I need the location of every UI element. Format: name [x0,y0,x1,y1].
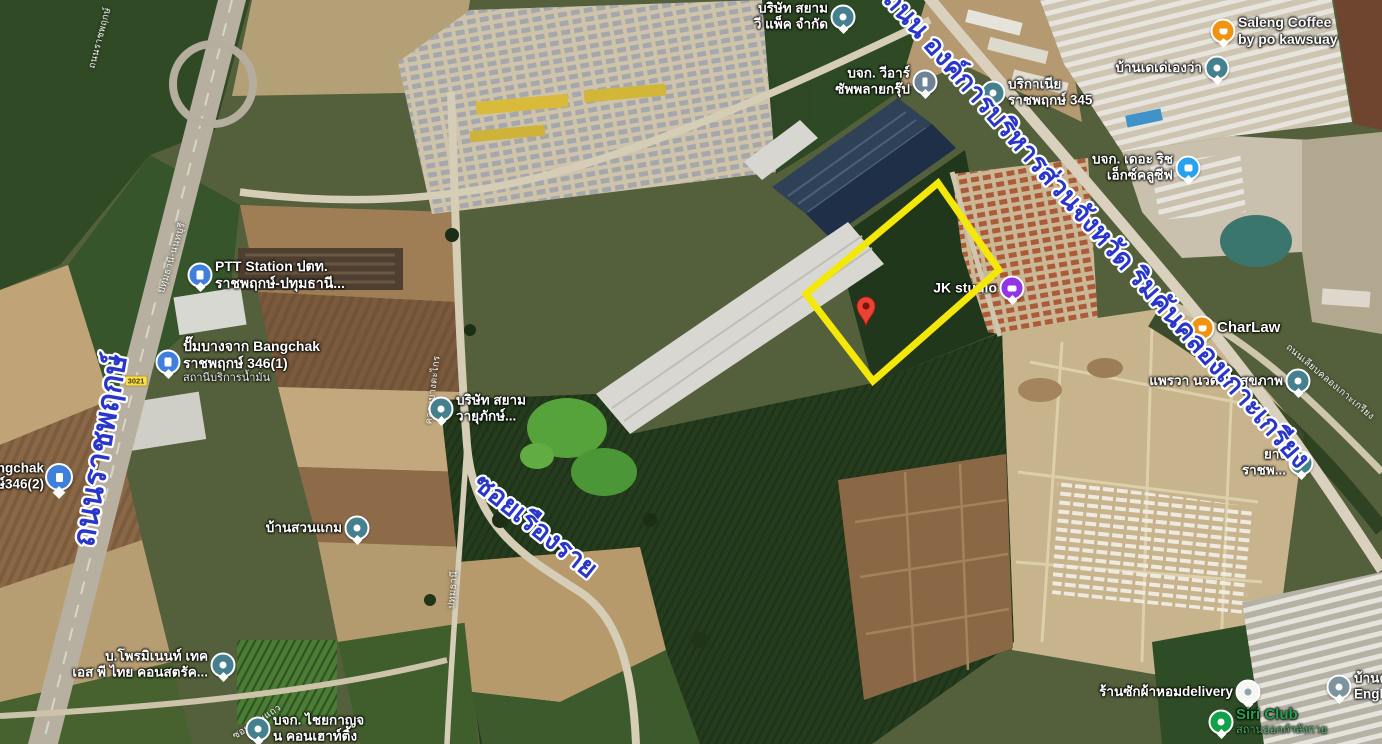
poi-label: แพรวา นวดเพื่อสุขภาพ [1149,373,1283,389]
poi-label-line: บ้านเดเด่เองว่า [1115,60,1202,76]
place-teal-icon [1289,451,1314,476]
poi-label-line: Bangchak [0,461,44,477]
poi-label-line: PTT Station ปตท. [215,258,345,275]
place-teal-icon [345,516,370,541]
poi-label-line: เอ็กซ์คลูซีฟ [1092,168,1173,184]
road-label-minor: ปทุมธานี [444,570,462,609]
poi-label-line: น คอนเฮาท์ติ้ง [273,729,364,744]
poi-label: ปั๊มบางจาก Bangchakราชพฤกษ์ 346(1)สถานีบ… [183,338,320,386]
poi-label: บริษัท สยามวี แพ็ค จำกัด [754,1,828,34]
place-teal-icon [1286,369,1311,394]
place-teal-icon [981,81,1006,106]
poi-label: บจก. วีอาร์ซัพพลายกรุ๊ป [835,66,910,99]
place-light-icon [1236,680,1261,705]
poi-label: บจก. เดอะ ริชเอ็กซ์คลูซีฟ [1092,152,1173,185]
poi-label-line: บริษัท สยาม [456,393,526,409]
place-teal-icon [831,5,856,30]
lodging-blue-icon [1176,156,1201,181]
poi-label: PTT Station ปตท.ราชพฤกษ์-ปทุมธานี... [215,258,345,292]
poi-label-line: ราชพ... [1242,463,1286,479]
poi-label-line: Siri Club [1236,706,1327,724]
road-label-provincial-administration-road: ถนน องค์การบริหารส่วนจังหวัด ริมคันคลองเ… [878,0,1317,474]
pin-dot-icon [862,302,869,309]
poi-label: ยางราชพ... [1242,447,1286,480]
poi-label-line: วายุภักษ์... [456,409,526,425]
fuel-blue-icon [188,263,213,288]
poi-label-line: ซัพพลายกรุ๊ป [835,82,910,98]
poi-label-line: เอส พี ไทย คอนสตรัค... [72,665,208,681]
poi-label-line: ร้านซักผ้าหอมdelivery [1099,684,1233,700]
poi-label: บริษัท สยามวายุภักษ์... [456,393,526,426]
poi-label-line: วี แพ็ค จำกัด [754,17,828,33]
studio-purple-icon [1000,276,1025,301]
poi-label: ร้านซักผ้าหอมdelivery [1099,684,1233,700]
poi-label: บ.โพรมิเนนท์ เทคเอส พี ไทย คอนสตรัค... [72,649,208,682]
poi-label: Siri Clubสถานออกกำลังกาย [1236,706,1327,738]
place-teal-icon [211,653,236,678]
poi-label-line: บ้านสวนแกม [266,520,342,536]
poi-label-line: ปั๊มบางจาก Bangchak [183,338,320,355]
route-shield: 3021 [125,376,148,387]
poi-label: JK studio [933,279,997,296]
poi-label-line: บ้านครู [1354,671,1382,687]
place-teal-icon [246,717,271,742]
poi-label: บ้านครูEnglish [1354,671,1382,704]
poi-sublabel: สถานีบริการน้ำมัน [183,372,320,385]
poi-label-line: English [1354,687,1382,703]
pin-icon [857,297,875,326]
poi-label: บริกาเนียราชพฤกษ์ 345 [1008,77,1092,110]
poi-label: บจก. ไชยกาญจน คอนเฮาท์ติ้ง [273,713,364,744]
place-gray-icon [1327,675,1352,700]
poi-label-line: by po kawsuay [1238,31,1338,48]
poi-label-line: บริษัท สยาม [754,1,828,17]
satellite-map[interactable]: ถนนเลียบคลองเกาะเกรียงปทุมธานี-นนทบุรีคล… [0,0,1382,744]
poi-layer: Saleng Coffeeby po kawsuayบ้านเดเด่เองว่… [0,0,1382,744]
park-green-icon [1209,710,1234,735]
poi-label: CharLaw [1217,319,1280,337]
road-label-minor: ถนนราชพฤกษ์ [85,6,116,70]
poi-label: บ้านเดเด่เองว่า [1115,60,1202,76]
poi-label-line: บจก. วีอาร์ [835,66,910,82]
fuel-blue-icon [156,350,181,375]
poi-label-line: บ.โพรมิเนนท์ เทค [72,649,208,665]
company-slate-icon [913,70,938,95]
fuel-pin-blue-icon [45,463,73,491]
poi-label-line: บจก. เดอะ ริช [1092,152,1173,168]
poi-label-line: Saleng Coffee [1238,14,1338,31]
road-label-ratchaphruek: ถนนราชพฤกษ์ [66,351,134,550]
road-label-minor: ปทุมธานี-นนทบุรี [154,221,190,296]
place-teal-icon [1205,56,1230,81]
poi-label-line: ราชพฤกษ์ 345 [1008,93,1092,109]
poi-label: Saleng Coffeeby po kawsuay [1238,14,1338,48]
poi-label-line: แพรวา นวดเพื่อสุขภาพ [1149,373,1283,389]
road-label-soi-rueang-rai: ซอยเรืองราย [468,468,603,584]
poi-label-line: CharLaw [1217,319,1280,337]
poi-label-line: JK studio [933,279,997,296]
poi-label-line: ยาง [1242,447,1286,463]
cafe-orange-icon [1211,19,1236,44]
poi-label-line: บริกาเนีย [1008,77,1092,93]
location-pin[interactable] [857,297,875,326]
poi-label: Bangchakกษ์346(2) [0,461,44,494]
poi-label-line: กษ์346(2) [0,477,44,493]
cafe-orange-icon [1190,316,1215,341]
poi-label-line: ราชพฤกษ์ 346(1) [183,355,320,372]
poi-label-line: บจก. ไชยกาญจ [273,713,364,729]
poi-sublabel: สถานออกกำลังกาย [1236,724,1327,737]
place-teal-icon [429,397,454,422]
poi-label-line: ราชพฤกษ์-ปทุมธานี... [215,275,345,292]
poi-label: บ้านสวนแกม [266,520,342,536]
